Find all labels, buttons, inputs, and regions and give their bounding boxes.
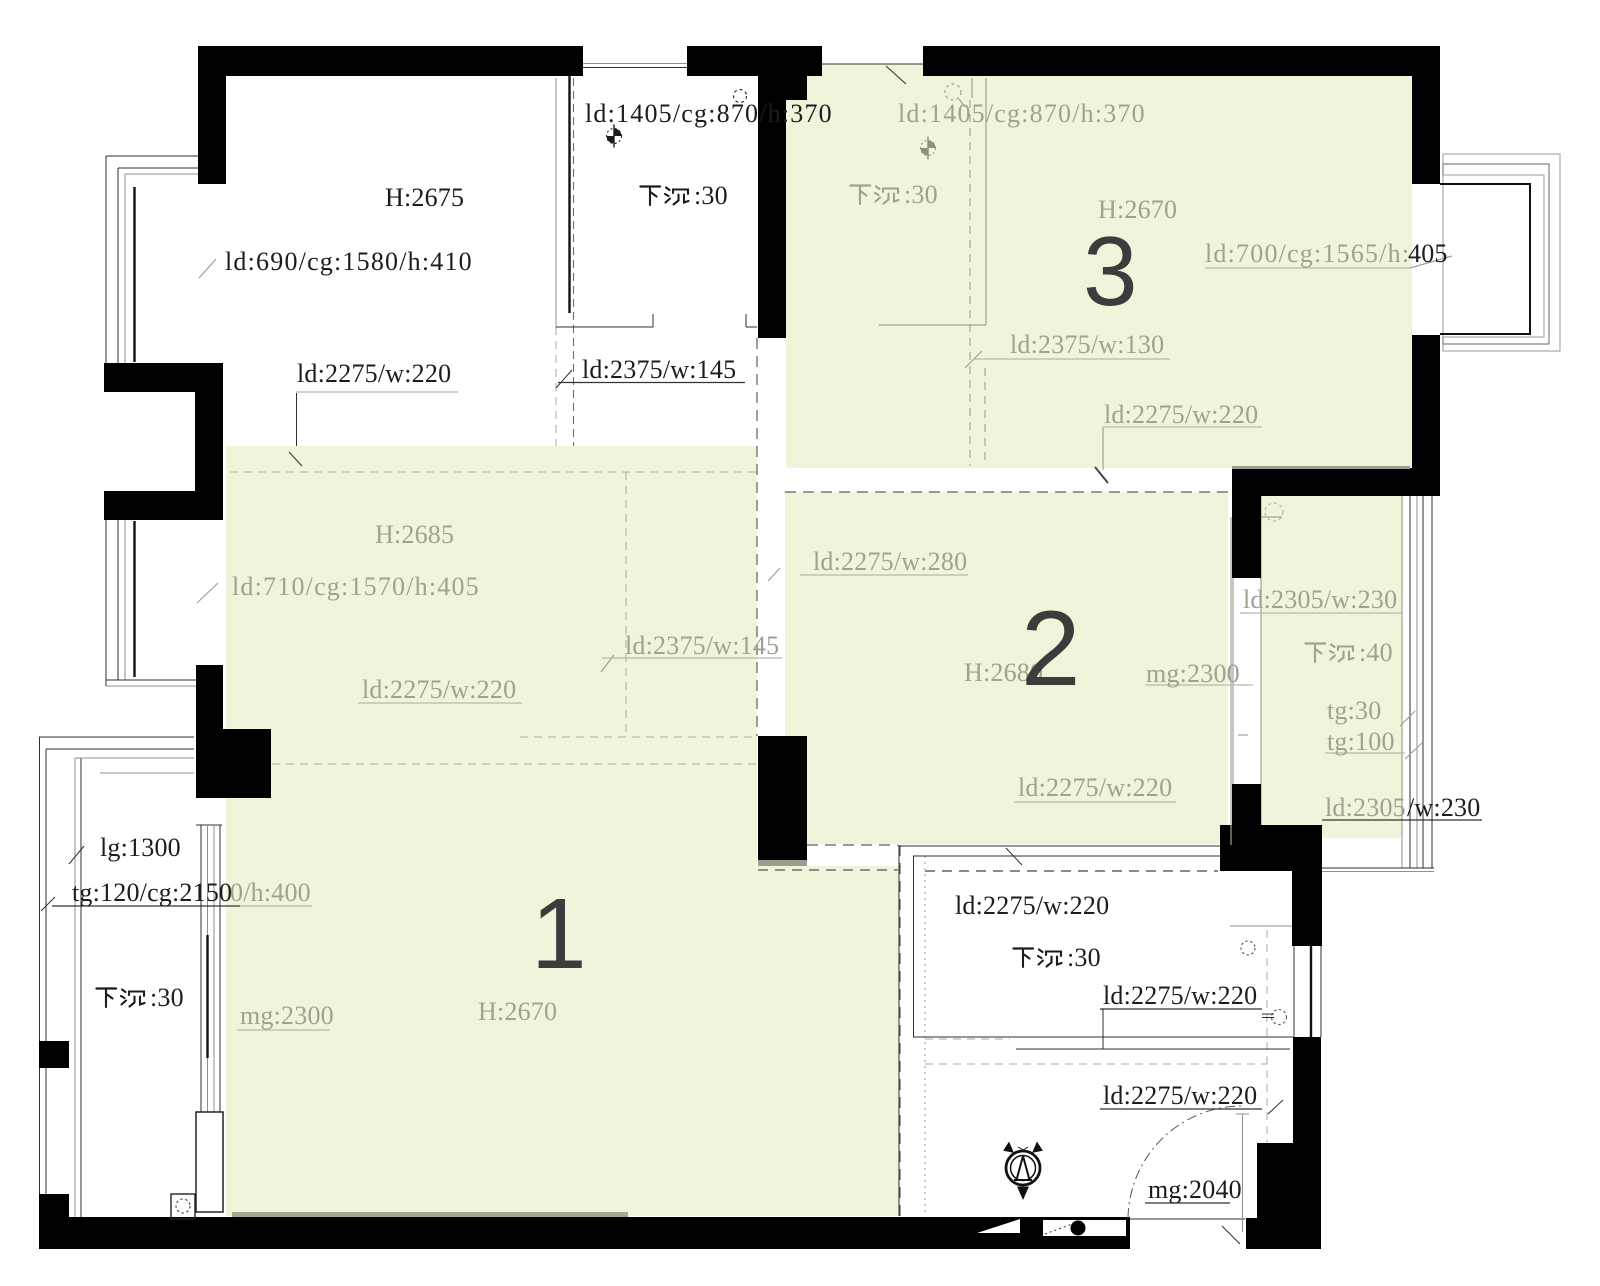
svg-text:mg:2300: mg:2300 <box>1146 659 1240 688</box>
svg-text:1: 1 <box>531 878 587 990</box>
svg-text::30: :30 <box>694 181 728 210</box>
svg-text:2: 2 <box>1021 588 1081 708</box>
svg-text::30: :30 <box>150 983 184 1012</box>
svg-text:ld:2275/w:220: ld:2275/w:220 <box>297 359 451 388</box>
svg-text:ld:690/cg:1580/h:410: ld:690/cg:1580/h:410 <box>225 247 473 276</box>
svg-text:ld:2375/w:145: ld:2375/w:145 <box>582 355 736 384</box>
svg-text:ld:2275/w:220: ld:2275/w:220 <box>955 891 1109 920</box>
svg-text:ld:710/cg:1570/h:405: ld:710/cg:1570/h:405 <box>232 572 480 601</box>
svg-text::40: :40 <box>1359 638 1393 667</box>
svg-text:mg:2300: mg:2300 <box>240 1001 334 1030</box>
svg-text:/w:230: /w:230 <box>1407 793 1480 822</box>
svg-text:H:2685: H:2685 <box>375 520 454 549</box>
svg-text:tg:100: tg:100 <box>1327 727 1395 756</box>
svg-text:ld:2275/w:280: ld:2275/w:280 <box>813 547 967 576</box>
svg-text:ld:1405/cg:870/h:370: ld:1405/cg:870/h:370 <box>898 99 1146 128</box>
svg-text:ld:700/cg:1565/h:: ld:700/cg:1565/h: <box>1205 239 1410 268</box>
svg-text:tg:30: tg:30 <box>1327 696 1381 725</box>
svg-text:3: 3 <box>1083 216 1138 326</box>
svg-text:ld:2305: ld:2305 <box>1325 793 1406 822</box>
svg-text:ld:2275/w:220: ld:2275/w:220 <box>1103 981 1257 1010</box>
svg-text::30: :30 <box>1067 943 1101 972</box>
svg-text:ld:2275/w:220: ld:2275/w:220 <box>362 675 516 704</box>
svg-text:ld:2375/w:130: ld:2375/w:130 <box>1010 330 1164 359</box>
svg-text:mg:2040: mg:2040 <box>1148 1175 1242 1204</box>
svg-text:ld:2275/w:220: ld:2275/w:220 <box>1103 1081 1257 1110</box>
svg-text:ld:2275/w:220: ld:2275/w:220 <box>1104 400 1258 429</box>
svg-text:ld:2275/w:220: ld:2275/w:220 <box>1018 773 1172 802</box>
svg-text:H:2675: H:2675 <box>385 183 464 212</box>
svg-text:tg:120/cg:2150: tg:120/cg:2150 <box>72 878 232 907</box>
svg-text:0/h:400: 0/h:400 <box>230 878 311 907</box>
svg-text:ld:1405/cg:870/h:370: ld:1405/cg:870/h:370 <box>585 99 833 128</box>
svg-text:ld:2305/w:230: ld:2305/w:230 <box>1243 585 1397 614</box>
svg-text:405: 405 <box>1408 239 1448 268</box>
svg-text:H:2670: H:2670 <box>478 997 557 1026</box>
svg-text:ld:2375/w:145: ld:2375/w:145 <box>625 631 779 660</box>
svg-text::30: :30 <box>904 180 938 209</box>
svg-text:lg:1300: lg:1300 <box>100 833 181 862</box>
